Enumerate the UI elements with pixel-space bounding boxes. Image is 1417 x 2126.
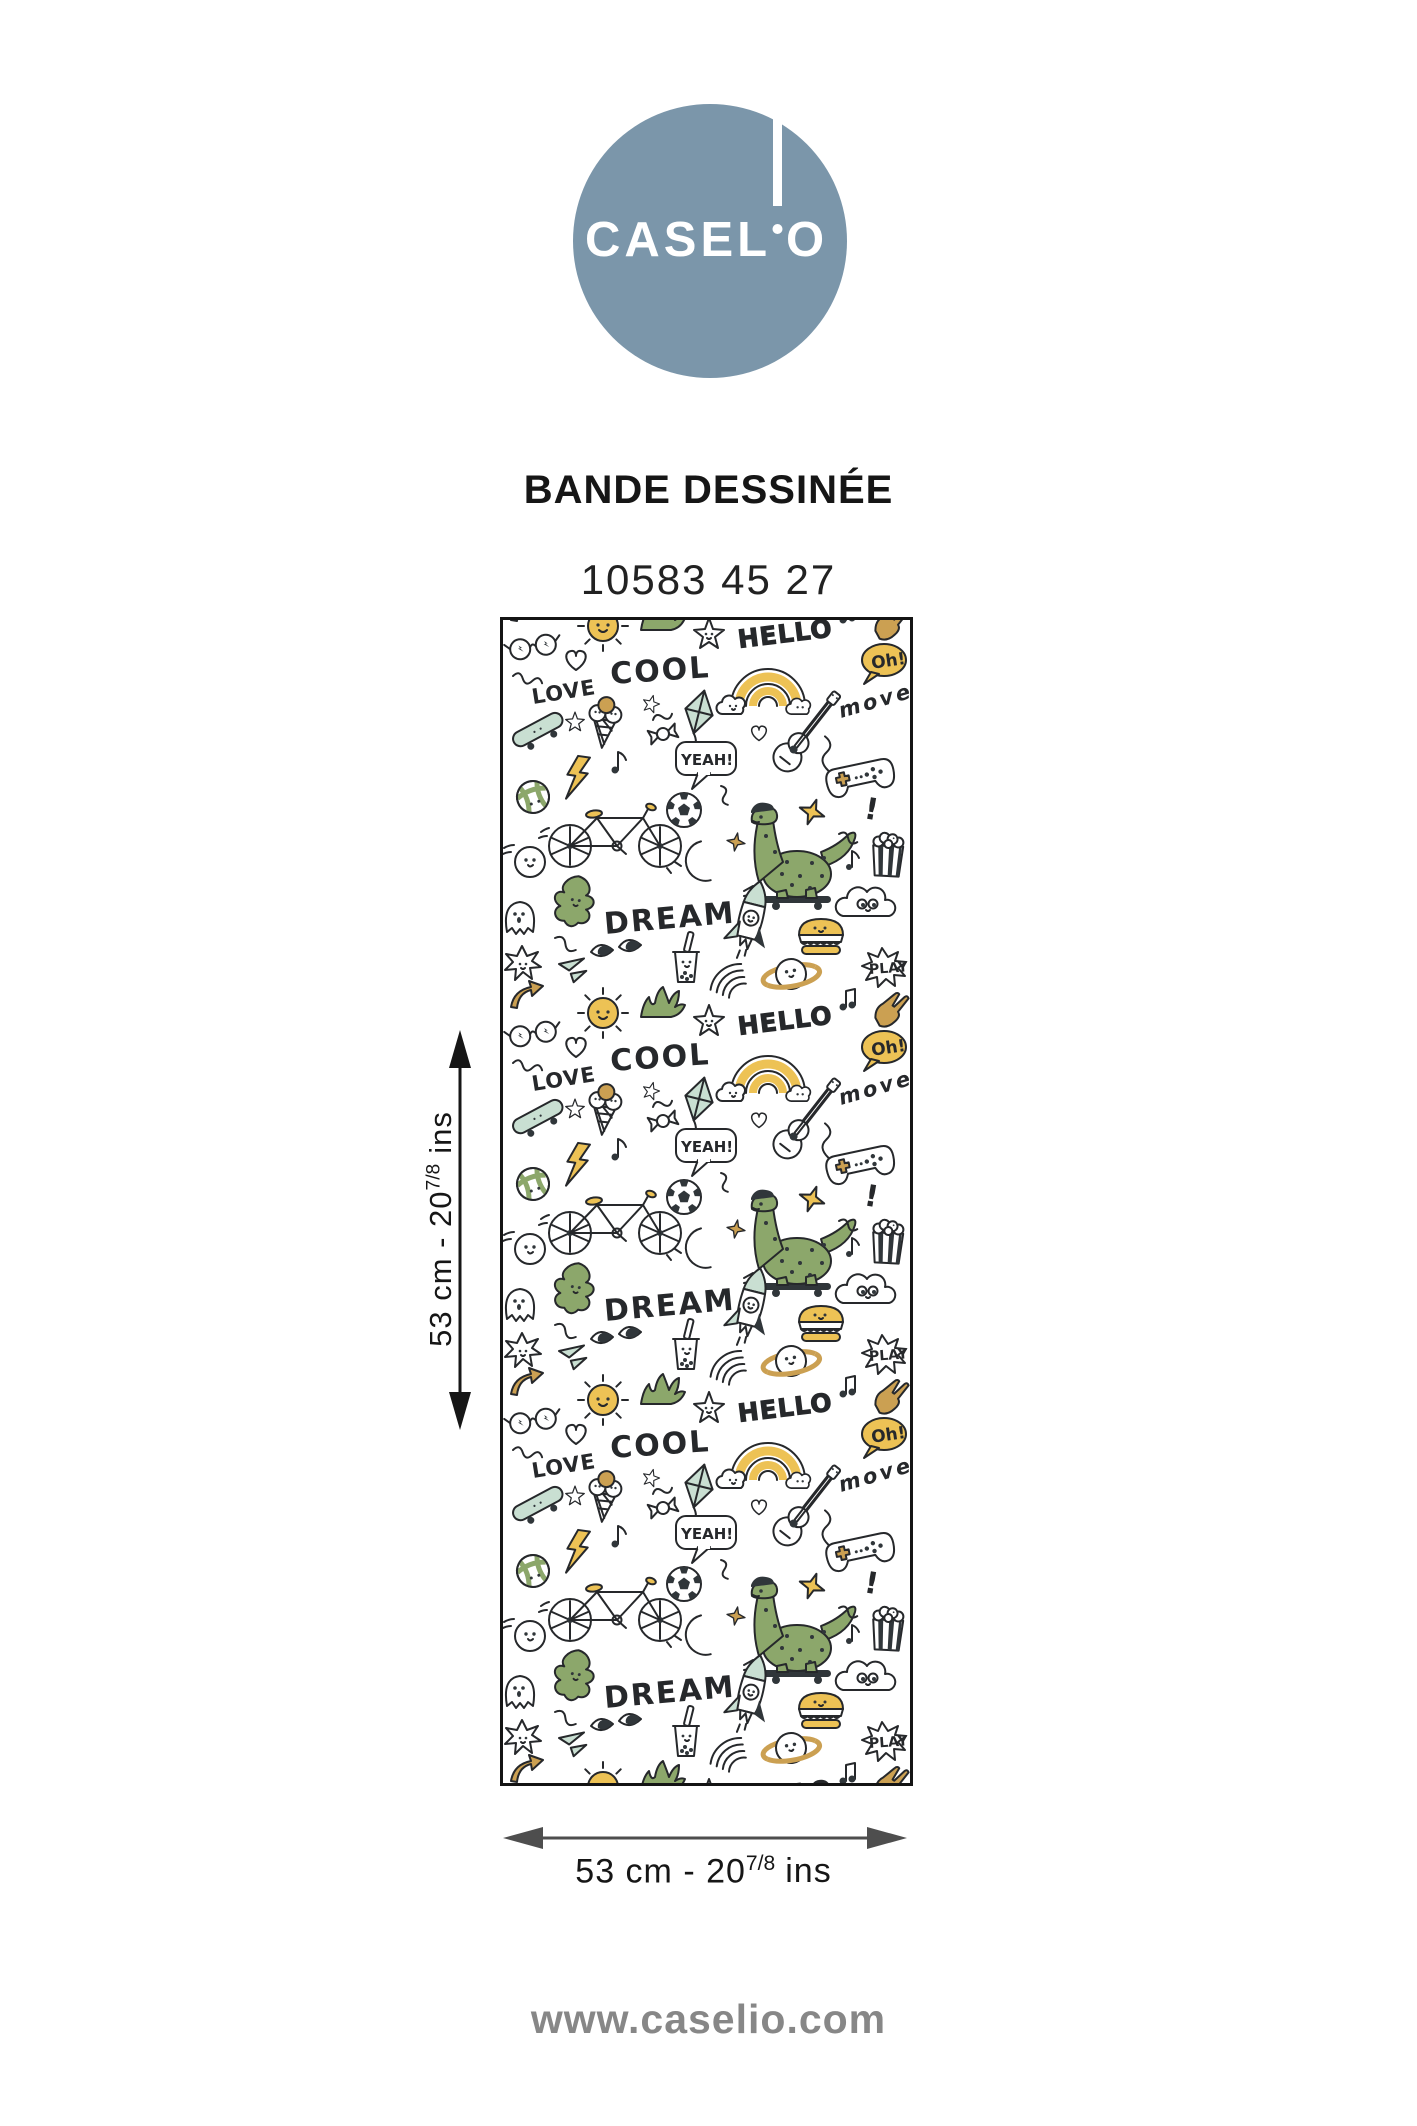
width-dim-text: 53 cm - 20 <box>575 1852 746 1890</box>
width-dim-fraction: 7/8 <box>746 1852 775 1875</box>
height-dim-unit: ins <box>423 1111 458 1154</box>
logo-i-stem <box>773 106 782 206</box>
logo-wordmark-right: O <box>786 213 824 267</box>
collection-title: BANDE DESSINÉE <box>0 468 1417 513</box>
logo-wordmark-left: CASEL <box>585 213 771 267</box>
width-dimension-label: 53 cm - 207/8ins <box>500 1852 907 1891</box>
width-dim-unit: ins <box>785 1852 831 1890</box>
product-reference: 10583 45 27 <box>0 556 1417 604</box>
height-dim-text: 53 cm - 20 <box>423 1190 458 1346</box>
wallpaper-swatch: HELLO <box>500 617 913 1786</box>
height-dimension-label: 53 cm - 207/8ins <box>423 1059 461 1399</box>
height-dim-fraction: 7/8 <box>424 1164 445 1191</box>
brand-logo: CASEL O <box>573 104 847 378</box>
website-url: www.caselio.com <box>0 1996 1417 2043</box>
logo-i-dot <box>773 224 783 234</box>
product-sheet: CASEL O BANDE DESSINÉE 10583 45 27 <box>0 0 1417 2126</box>
wallpaper-pattern: HELLO <box>503 620 910 1783</box>
